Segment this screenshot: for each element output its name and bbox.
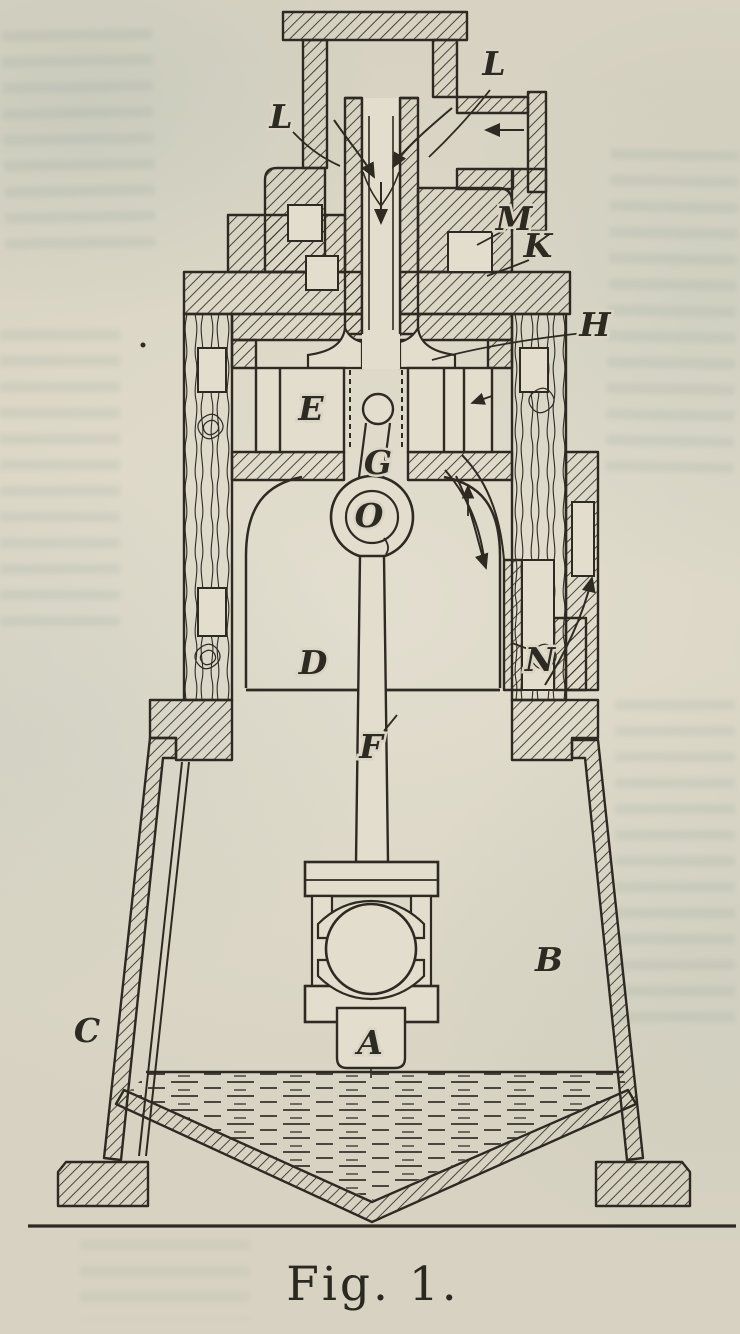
- piston-block-right: [408, 368, 492, 452]
- foot-right: [596, 1162, 690, 1206]
- part-label-l-right: L: [481, 44, 505, 83]
- part-label-n: N: [524, 640, 557, 679]
- crank-pin-circle: [326, 904, 416, 994]
- top-flange: [283, 12, 467, 40]
- central-tube-left-wall: [345, 98, 362, 334]
- rod-and-crosshead: [305, 556, 438, 1078]
- part-label-e: E: [297, 389, 324, 428]
- valve-pin-circle: [363, 394, 393, 424]
- figure-caption: Fig. 1.: [286, 1257, 459, 1312]
- engine-cross-section-figure: L L M K H E G O D N F B C A Fig. 1.: [0, 0, 740, 1334]
- chimney-left-leg: [303, 40, 327, 168]
- part-label-c: C: [74, 1011, 100, 1050]
- chimney-right-leg: [433, 40, 457, 97]
- crosshead-top-block: [305, 862, 438, 896]
- part-label-g: G: [364, 443, 392, 482]
- connecting-rod-F: [356, 556, 388, 862]
- part-label-h: H: [578, 305, 612, 344]
- piston-E-row: [256, 368, 492, 452]
- part-label-l-left: L: [268, 97, 292, 136]
- part-label-k: K: [523, 226, 554, 265]
- foot-left: [58, 1162, 148, 1206]
- central-tube-right-wall: [400, 98, 418, 334]
- inlet-pipe-top-wall: [457, 97, 528, 113]
- print-speck: [141, 343, 146, 348]
- piston-body-right: [408, 452, 512, 480]
- part-label-f: F: [358, 727, 385, 766]
- piston-body-left: [232, 452, 344, 480]
- part-label-a: A: [354, 1023, 383, 1062]
- printed-page: L L M K H E G O D N F B C A Fig. 1.: [0, 0, 740, 1334]
- part-label-o: O: [355, 496, 384, 535]
- part-label-d: D: [298, 643, 328, 682]
- part-label-b: B: [534, 940, 563, 979]
- exhaust-belt-window: [572, 502, 594, 576]
- gland-window: [448, 232, 492, 272]
- liner-strip: [232, 340, 256, 368]
- inlet-pipe-bottom-wall: [457, 169, 513, 189]
